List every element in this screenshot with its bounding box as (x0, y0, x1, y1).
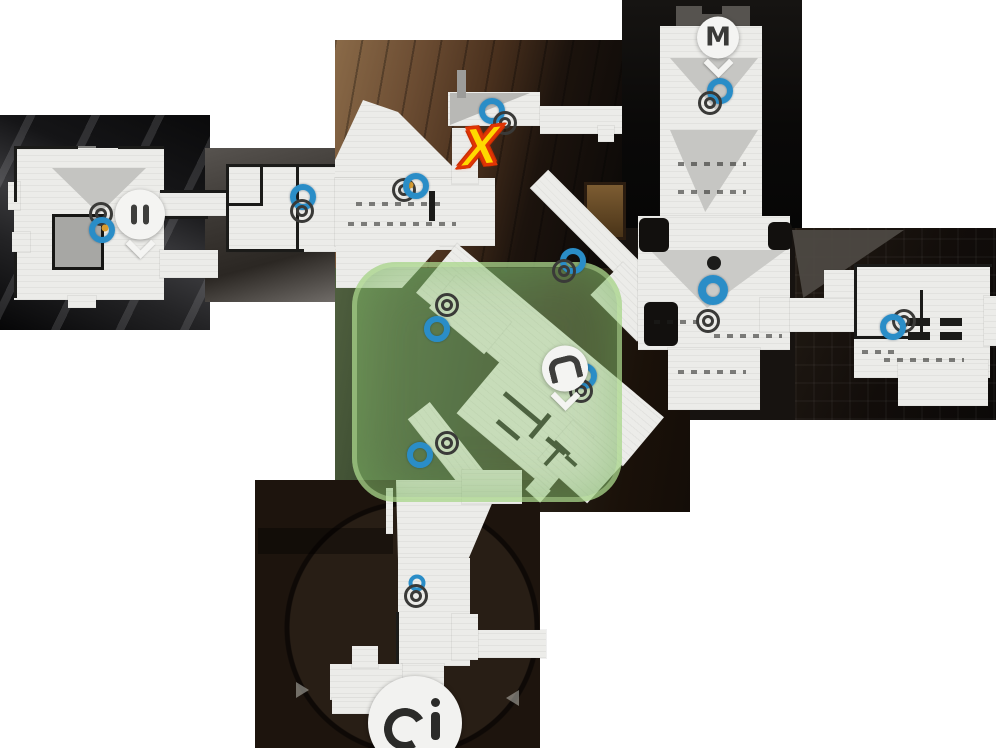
objective-pin (542, 346, 588, 407)
x-annotation: X (460, 120, 502, 177)
ring-blue-marker (424, 316, 450, 342)
ring-blue-marker (403, 173, 429, 199)
ring-gray-marker (290, 199, 314, 223)
ring-blue-marker (880, 314, 906, 340)
ring-gray-marker (435, 431, 459, 455)
exit-pin (115, 190, 165, 255)
ring-gray-marker (698, 91, 722, 115)
markers-layer (0, 0, 996, 748)
ring-gray-marker (696, 309, 720, 333)
dot-black-marker (707, 256, 721, 270)
metro-pin: M (697, 17, 739, 74)
dot-gold-marker (102, 225, 109, 232)
lock-icon (431, 712, 440, 740)
lock-icon (380, 704, 431, 748)
ring-gray-marker (552, 259, 576, 283)
ring-blue-marker (407, 442, 433, 468)
ring-gray-marker (404, 584, 428, 608)
lock-icon (431, 698, 440, 707)
ring-gray-marker (435, 293, 459, 317)
game-map: M X (0, 0, 996, 748)
arch-icon (547, 353, 584, 384)
gate-icon (131, 205, 149, 225)
ring-blue-large-marker (698, 275, 728, 305)
metro-pin-label: M (705, 25, 731, 51)
